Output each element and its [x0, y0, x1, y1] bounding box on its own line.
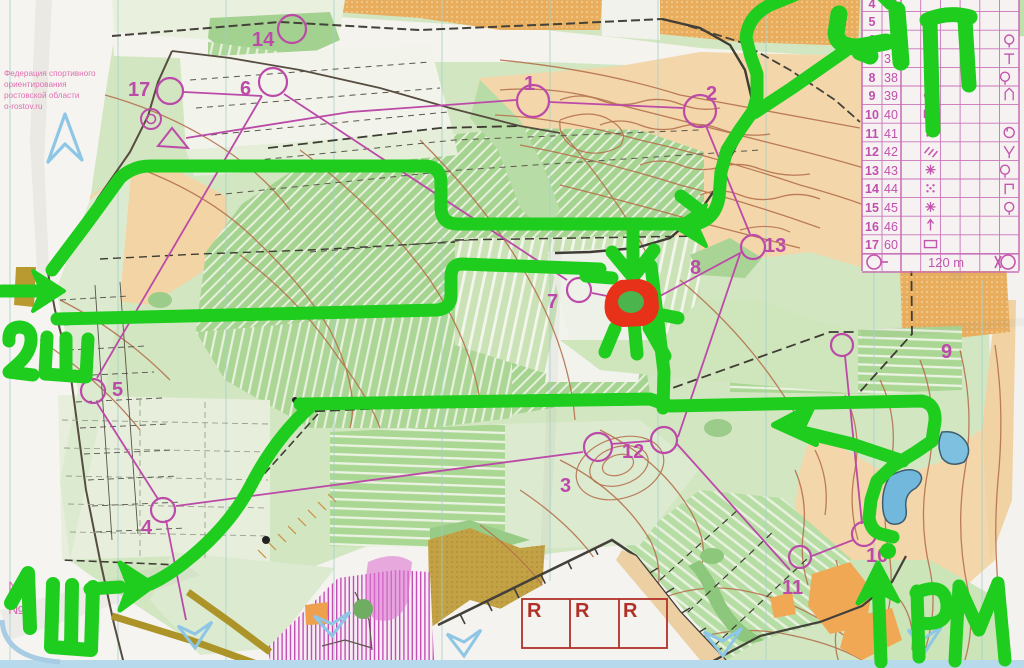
svg-text:60: 60 [884, 238, 898, 252]
svg-text:3: 3 [560, 475, 571, 497]
svg-text:46: 46 [884, 220, 898, 234]
svg-text:16: 16 [865, 220, 879, 234]
svg-text:R: R [575, 600, 590, 622]
svg-text:42: 42 [884, 145, 898, 159]
svg-text:11: 11 [782, 577, 803, 599]
svg-text:45: 45 [884, 201, 898, 215]
svg-text:1: 1 [524, 73, 535, 95]
svg-text:15: 15 [865, 201, 879, 215]
svg-text:6: 6 [240, 78, 251, 100]
svg-text:38: 38 [884, 71, 898, 85]
svg-text:12: 12 [865, 145, 879, 159]
svg-text:4: 4 [141, 517, 153, 539]
svg-text:41: 41 [884, 127, 898, 141]
svg-text:17: 17 [128, 79, 150, 101]
svg-text:9: 9 [941, 341, 952, 363]
svg-text:43: 43 [884, 164, 898, 178]
svg-text:8: 8 [869, 71, 876, 85]
svg-text:R: R [623, 600, 638, 622]
svg-text:120 m: 120 m [928, 255, 964, 270]
svg-text:2: 2 [706, 83, 717, 105]
svg-text:5: 5 [112, 379, 123, 401]
svg-text:40: 40 [884, 108, 898, 122]
svg-text:4: 4 [869, 0, 876, 11]
svg-text:14: 14 [252, 29, 275, 51]
svg-text:7: 7 [547, 291, 558, 313]
svg-text:R: R [527, 600, 542, 622]
svg-text:13: 13 [865, 164, 879, 178]
svg-text:17: 17 [865, 238, 879, 252]
svg-text:12: 12 [622, 441, 644, 463]
svg-text:5: 5 [869, 15, 876, 29]
svg-text:39: 39 [884, 89, 898, 103]
svg-text:ориентирования: ориентирования [4, 80, 67, 89]
svg-text:11: 11 [865, 127, 878, 141]
svg-text:10: 10 [865, 108, 879, 122]
svg-text:44: 44 [884, 182, 898, 196]
svg-text:9: 9 [869, 89, 876, 103]
svg-text:Федерация спортивного: Федерация спортивного [4, 69, 96, 78]
svg-text:8: 8 [690, 257, 701, 279]
svg-text:ростовской области: ростовской области [4, 91, 79, 100]
svg-text:13: 13 [764, 235, 786, 257]
svg-text:14: 14 [865, 182, 879, 196]
svg-text:o-rostov.ru: o-rostov.ru [4, 102, 43, 111]
